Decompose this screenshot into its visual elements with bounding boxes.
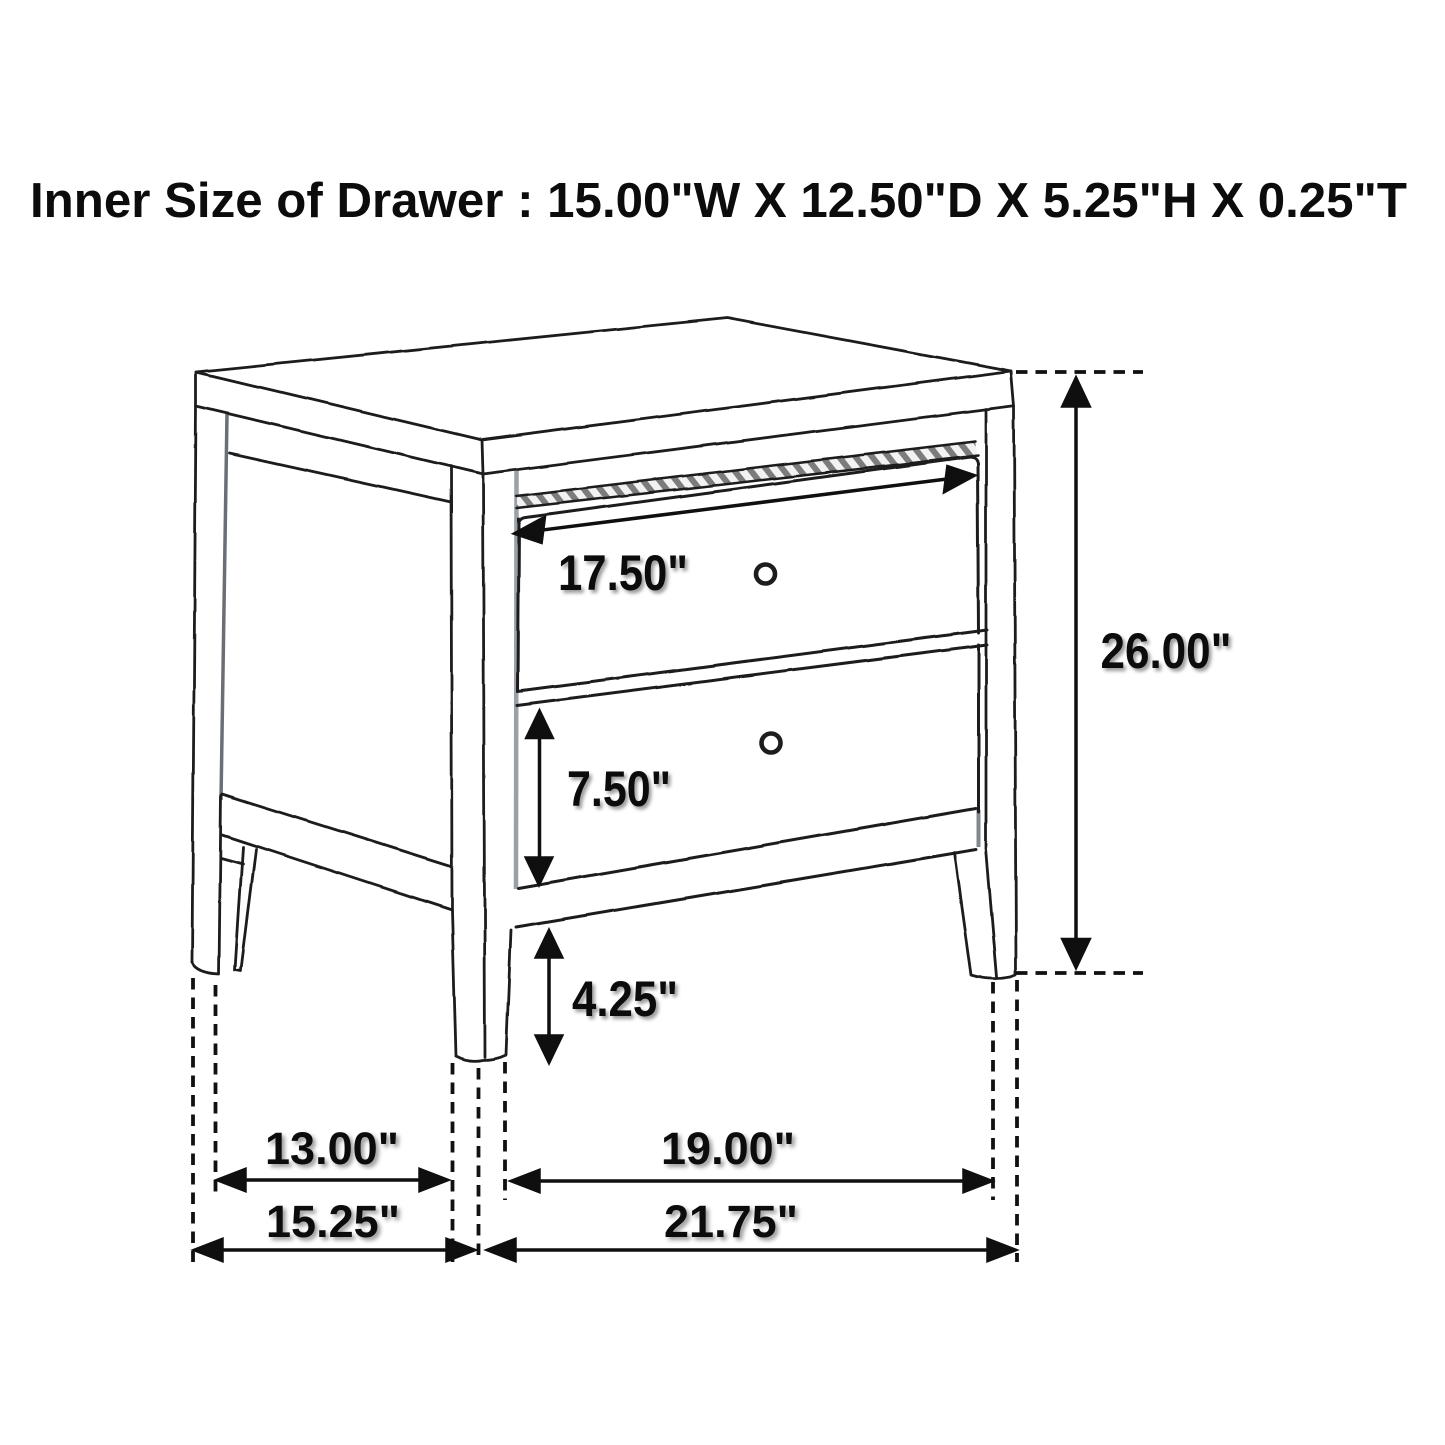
svg-text:26.00": 26.00" bbox=[1101, 623, 1232, 679]
svg-text:17.50": 17.50" bbox=[558, 545, 688, 601]
svg-text:Inner Size of Drawer : 15.00"W: Inner Size of Drawer : 15.00"W X 12.50"D… bbox=[30, 174, 1407, 228]
svg-text:4.25": 4.25" bbox=[572, 971, 678, 1027]
svg-text:13.00": 13.00" bbox=[265, 1123, 399, 1174]
svg-text:21.75": 21.75" bbox=[664, 1196, 798, 1247]
svg-text:7.50": 7.50" bbox=[567, 761, 671, 817]
svg-text:19.00": 19.00" bbox=[661, 1123, 795, 1174]
svg-text:15.25": 15.25" bbox=[266, 1196, 400, 1247]
